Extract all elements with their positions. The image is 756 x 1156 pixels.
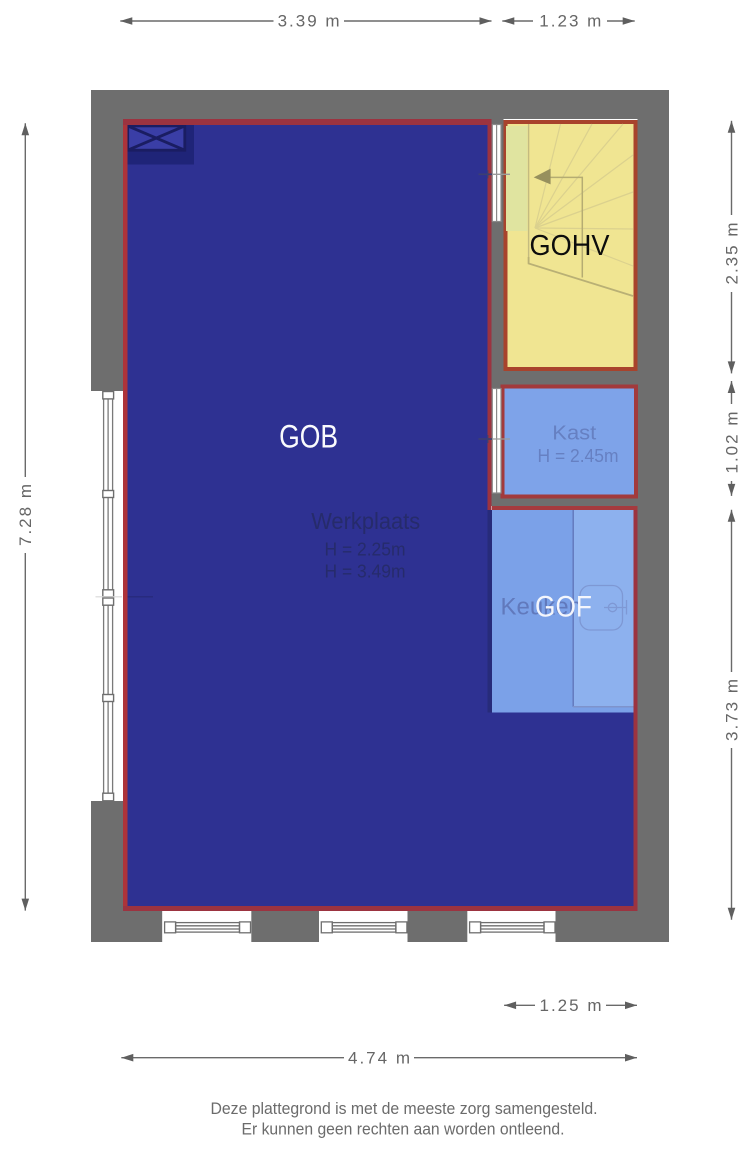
svg-text:GOHV: GOHV (530, 230, 611, 262)
svg-text:7.28 m: 7.28 m (16, 484, 35, 546)
svg-text:1.02 m: 1.02 m (722, 412, 741, 474)
svg-text:3.73 m: 3.73 m (722, 679, 741, 741)
svg-text:1.25 m: 1.25 m (540, 996, 602, 1015)
svg-text:Deze plattegrond is met de mee: Deze plattegrond is met de meeste zorg s… (211, 1099, 598, 1118)
svg-text:GOF: GOF (535, 591, 592, 624)
svg-text:1.23 m: 1.23 m (539, 12, 601, 31)
svg-text:3.39 m: 3.39 m (278, 12, 340, 31)
svg-text:H = 2.25m: H = 2.25m (325, 540, 406, 560)
svg-text:Kast: Kast (552, 423, 596, 445)
svg-text:Er kunnen geen rechten aan wor: Er kunnen geen rechten aan worden ontlee… (242, 1120, 565, 1139)
svg-text:4.74 m: 4.74 m (348, 1048, 410, 1067)
svg-text:GOB: GOB (279, 419, 338, 455)
svg-text:H = 3.49m: H = 3.49m (325, 562, 406, 582)
svg-text:Werkplaats: Werkplaats (311, 508, 420, 534)
svg-text:2.35 m: 2.35 m (722, 223, 741, 285)
svg-text:H = 2.45m: H = 2.45m (538, 446, 619, 466)
